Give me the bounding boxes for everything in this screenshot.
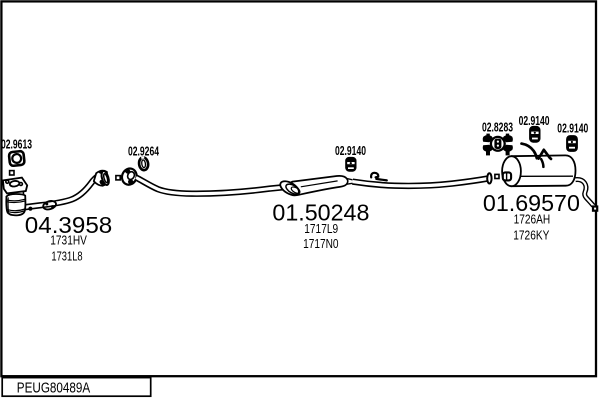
svg-text:1726AH: 1726AH xyxy=(514,212,551,226)
svg-text:02.9613: 02.9613 xyxy=(1,138,32,152)
svg-text:02.9264: 02.9264 xyxy=(128,145,160,159)
svg-text:02.9140: 02.9140 xyxy=(557,122,588,136)
svg-text:1726KY: 1726KY xyxy=(513,228,549,242)
svg-text:1717N0: 1717N0 xyxy=(303,237,339,251)
svg-text:02.9140: 02.9140 xyxy=(519,115,550,129)
svg-text:02.9140: 02.9140 xyxy=(335,144,366,158)
svg-text:1717L9: 1717L9 xyxy=(304,222,338,236)
svg-text:1731L8: 1731L8 xyxy=(51,250,82,264)
svg-text:02.8283: 02.8283 xyxy=(482,121,513,135)
svg-text:PEUG80489A: PEUG80489A xyxy=(17,379,90,396)
svg-text:1731HV: 1731HV xyxy=(50,233,87,247)
